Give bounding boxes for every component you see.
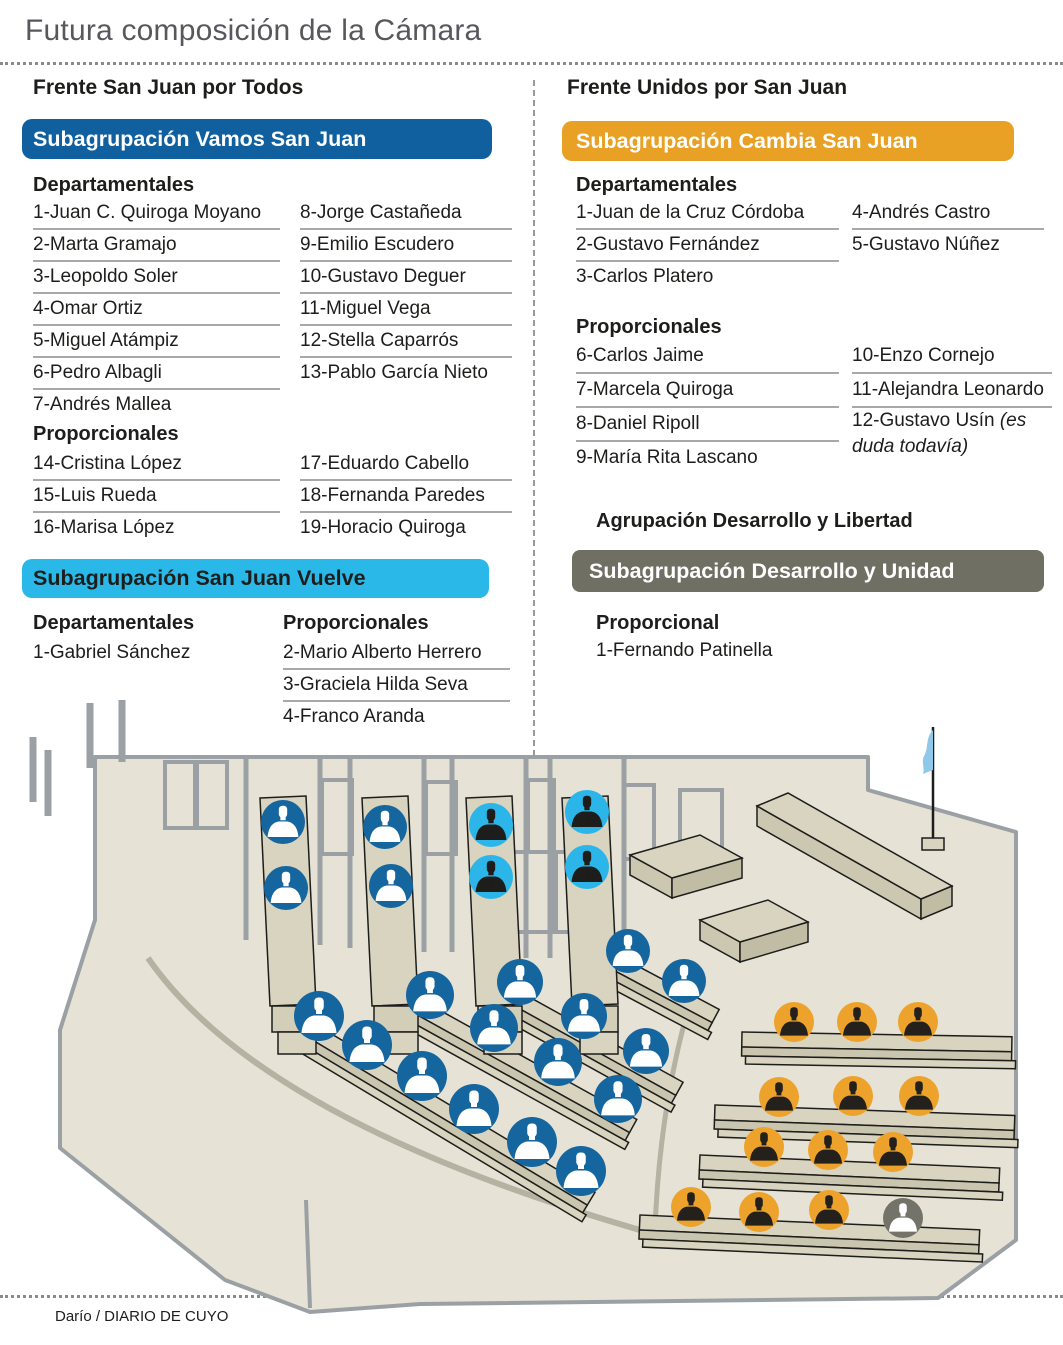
seat-avatar-vamos — [623, 1028, 669, 1074]
bar-desarrollo-label: Subagrupación Desarrollo y Unidad — [589, 559, 955, 584]
infographic-page: Futura composición de la Cámara Frente S… — [0, 0, 1063, 1345]
bar-vuelve-label: Subagrupación San Juan Vuelve — [33, 566, 366, 591]
list-item: 7-Andrés Mallea — [33, 390, 280, 420]
list-item: 11-Alejandra Leonardo — [852, 374, 1052, 408]
member-name: 12-Gustavo Usín — [852, 410, 1000, 431]
seat-avatar-vamos — [406, 971, 454, 1019]
seat-avatar-vamos — [556, 1146, 606, 1196]
list-item: 1-Gabriel Sánchez — [33, 638, 258, 668]
cambia-prop-col1: 6-Carlos Jaime 7-Marcela Quiroga 8-Danie… — [576, 340, 839, 474]
bar-cambia-label: Subagrupación Cambia San Juan — [576, 129, 918, 154]
cambia-dep-label: Departamentales — [576, 174, 737, 197]
list-item: 16-Marisa López — [33, 513, 280, 543]
seat-avatar-cambia — [898, 1002, 938, 1042]
bar-desarrollo-unidad: Subagrupación Desarrollo y Unidad — [572, 550, 1044, 592]
list-item: 6-Pedro Albagli — [33, 358, 280, 390]
seat-avatar-vuelve — [469, 803, 513, 847]
list-item: 7-Marcela Quiroga — [576, 374, 839, 408]
list-item: 14-Cristina López — [33, 449, 280, 481]
list-item: 2-Marta Gramajo — [33, 230, 280, 262]
seat-avatar-cambia — [837, 1002, 877, 1042]
list-item: 4-Omar Ortiz — [33, 294, 280, 326]
seat-avatar-vamos — [606, 929, 650, 973]
seat-avatar-vamos — [397, 1051, 447, 1101]
seat-avatar-vamos — [294, 991, 344, 1041]
seat-avatar-cambia — [759, 1077, 799, 1117]
seat-avatar-vamos — [594, 1075, 642, 1123]
vamos-prop-col1: 14-Cristina López 15-Luis Rueda 16-Maris… — [33, 449, 280, 543]
desarrollo-prop-label: Proporcional — [596, 612, 719, 635]
seat-avatar-cambia — [833, 1076, 873, 1116]
seat-avatar-desarrollo — [883, 1198, 923, 1238]
list-item: 2-Mario Alberto Herrero — [283, 638, 510, 670]
seat-avatar-vamos — [561, 993, 607, 1039]
list-item: 6-Carlos Jaime — [576, 340, 839, 374]
seat-avatar-vamos — [261, 800, 305, 844]
list-item: 9-Emilio Escudero — [300, 230, 512, 262]
bar-vamos-label: Subagrupación Vamos San Juan — [33, 127, 366, 152]
seat-avatar-cambia — [774, 1002, 814, 1042]
seat-avatar-vuelve — [469, 855, 513, 899]
seat-avatar-vuelve — [565, 845, 609, 889]
cambia-dep-col2: 4-Andrés Castro 5-Gustavo Núñez — [852, 198, 1044, 260]
page-title: Futura composición de la Cámara — [25, 14, 481, 48]
vuelve-dep-label: Departamentales — [33, 612, 194, 635]
list-item: 1-Juan C. Quiroga Moyano — [33, 198, 280, 230]
vamos-prop-col2: 17-Eduardo Cabello 18-Fernanda Paredes 1… — [300, 449, 512, 543]
frente-left-title: Frente San Juan por Todos — [33, 76, 303, 100]
list-item: 13-Pablo García Nieto — [300, 358, 512, 388]
list-item: 4-Andrés Castro — [852, 198, 1044, 230]
list-item: 5-Gustavo Núñez — [852, 230, 1044, 260]
seat-avatar-cambia — [739, 1192, 779, 1232]
seat-avatar-vuelve — [565, 790, 609, 834]
list-item: 1-Juan de la Cruz Córdoba — [576, 198, 839, 230]
list-item: 11-Miguel Vega — [300, 294, 512, 326]
seat-avatar-cambia — [744, 1127, 784, 1167]
frente-right-title: Frente Unidos por San Juan — [567, 76, 847, 100]
list-item: 5-Miguel Atámpiz — [33, 326, 280, 358]
list-item: 3-Leopoldo Soler — [33, 262, 280, 294]
seat-avatar-vamos — [470, 1004, 518, 1052]
seat-avatar-cambia — [873, 1132, 913, 1172]
list-item: 8-Daniel Ripoll — [576, 408, 839, 442]
list-item: 8-Jorge Castañeda — [300, 198, 512, 230]
credit-line: Darío / DIARIO DE CUYO — [55, 1308, 228, 1325]
column-divider-dashed — [533, 80, 535, 756]
list-item: 18-Fernanda Paredes — [300, 481, 512, 513]
agrupacion-title: Agrupación Desarrollo y Libertad — [596, 510, 913, 533]
list-item: 3-Carlos Platero — [576, 262, 839, 292]
seat-avatar-vamos — [662, 959, 706, 1003]
seat-avatar-vamos — [264, 866, 308, 910]
seat-avatar-vamos — [497, 959, 543, 1005]
cambia-dep-col1: 1-Juan de la Cruz Córdoba 2-Gustavo Fern… — [576, 198, 839, 292]
cambia-prop-label: Proporcionales — [576, 316, 722, 339]
list-item: 15-Luis Rueda — [33, 481, 280, 513]
list-item: 9-María Rita Lascano — [576, 442, 839, 474]
vamos-prop-label: Proporcionales — [33, 423, 179, 446]
bar-cambia-san-juan: Subagrupación Cambia San Juan — [562, 121, 1014, 161]
list-item: 19-Horacio Quiroga — [300, 513, 512, 543]
seat-avatar-cambia — [808, 1130, 848, 1170]
desarrollo-member: 1-Fernando Patinella — [596, 640, 772, 662]
seat-avatar-cambia — [809, 1190, 849, 1230]
bar-san-juan-vuelve: Subagrupación San Juan Vuelve — [22, 559, 489, 598]
vuelve-prop-label: Proporcionales — [283, 612, 429, 635]
list-item: 10-Gustavo Deguer — [300, 262, 512, 294]
seat-avatar-vamos — [342, 1020, 392, 1070]
vamos-dep-col1: 1-Juan C. Quiroga Moyano 2-Marta Gramajo… — [33, 198, 280, 420]
seat-avatar-vamos — [449, 1084, 499, 1134]
list-item: 10-Enzo Cornejo — [852, 340, 1052, 374]
seat-avatar-cambia — [899, 1076, 939, 1116]
title-divider-dotted — [0, 62, 1063, 65]
list-item: 2-Gustavo Fernández — [576, 230, 839, 262]
vamos-dep-col2: 8-Jorge Castañeda 9-Emilio Escudero 10-G… — [300, 198, 512, 388]
vamos-dep-label: Departamentales — [33, 174, 194, 197]
bar-vamos-san-juan: Subagrupación Vamos San Juan — [22, 119, 492, 159]
seat-avatar-cambia — [671, 1187, 711, 1227]
vuelve-dep-list: 1-Gabriel Sánchez — [33, 638, 258, 668]
seat-avatar-vamos — [507, 1117, 557, 1167]
list-item: 17-Eduardo Cabello — [300, 449, 512, 481]
list-item: 12-Gustavo Usín (es duda todavía) — [852, 408, 1052, 466]
seat-avatar-vamos — [534, 1038, 582, 1086]
cambia-prop-col2: 10-Enzo Cornejo 11-Alejandra Leonardo 12… — [852, 340, 1052, 466]
list-item: 12-Stella Caparrós — [300, 326, 512, 358]
chamber-illustration — [0, 690, 1063, 1345]
seat-avatar-vamos — [369, 864, 413, 908]
seat-avatar-vamos — [363, 805, 407, 849]
